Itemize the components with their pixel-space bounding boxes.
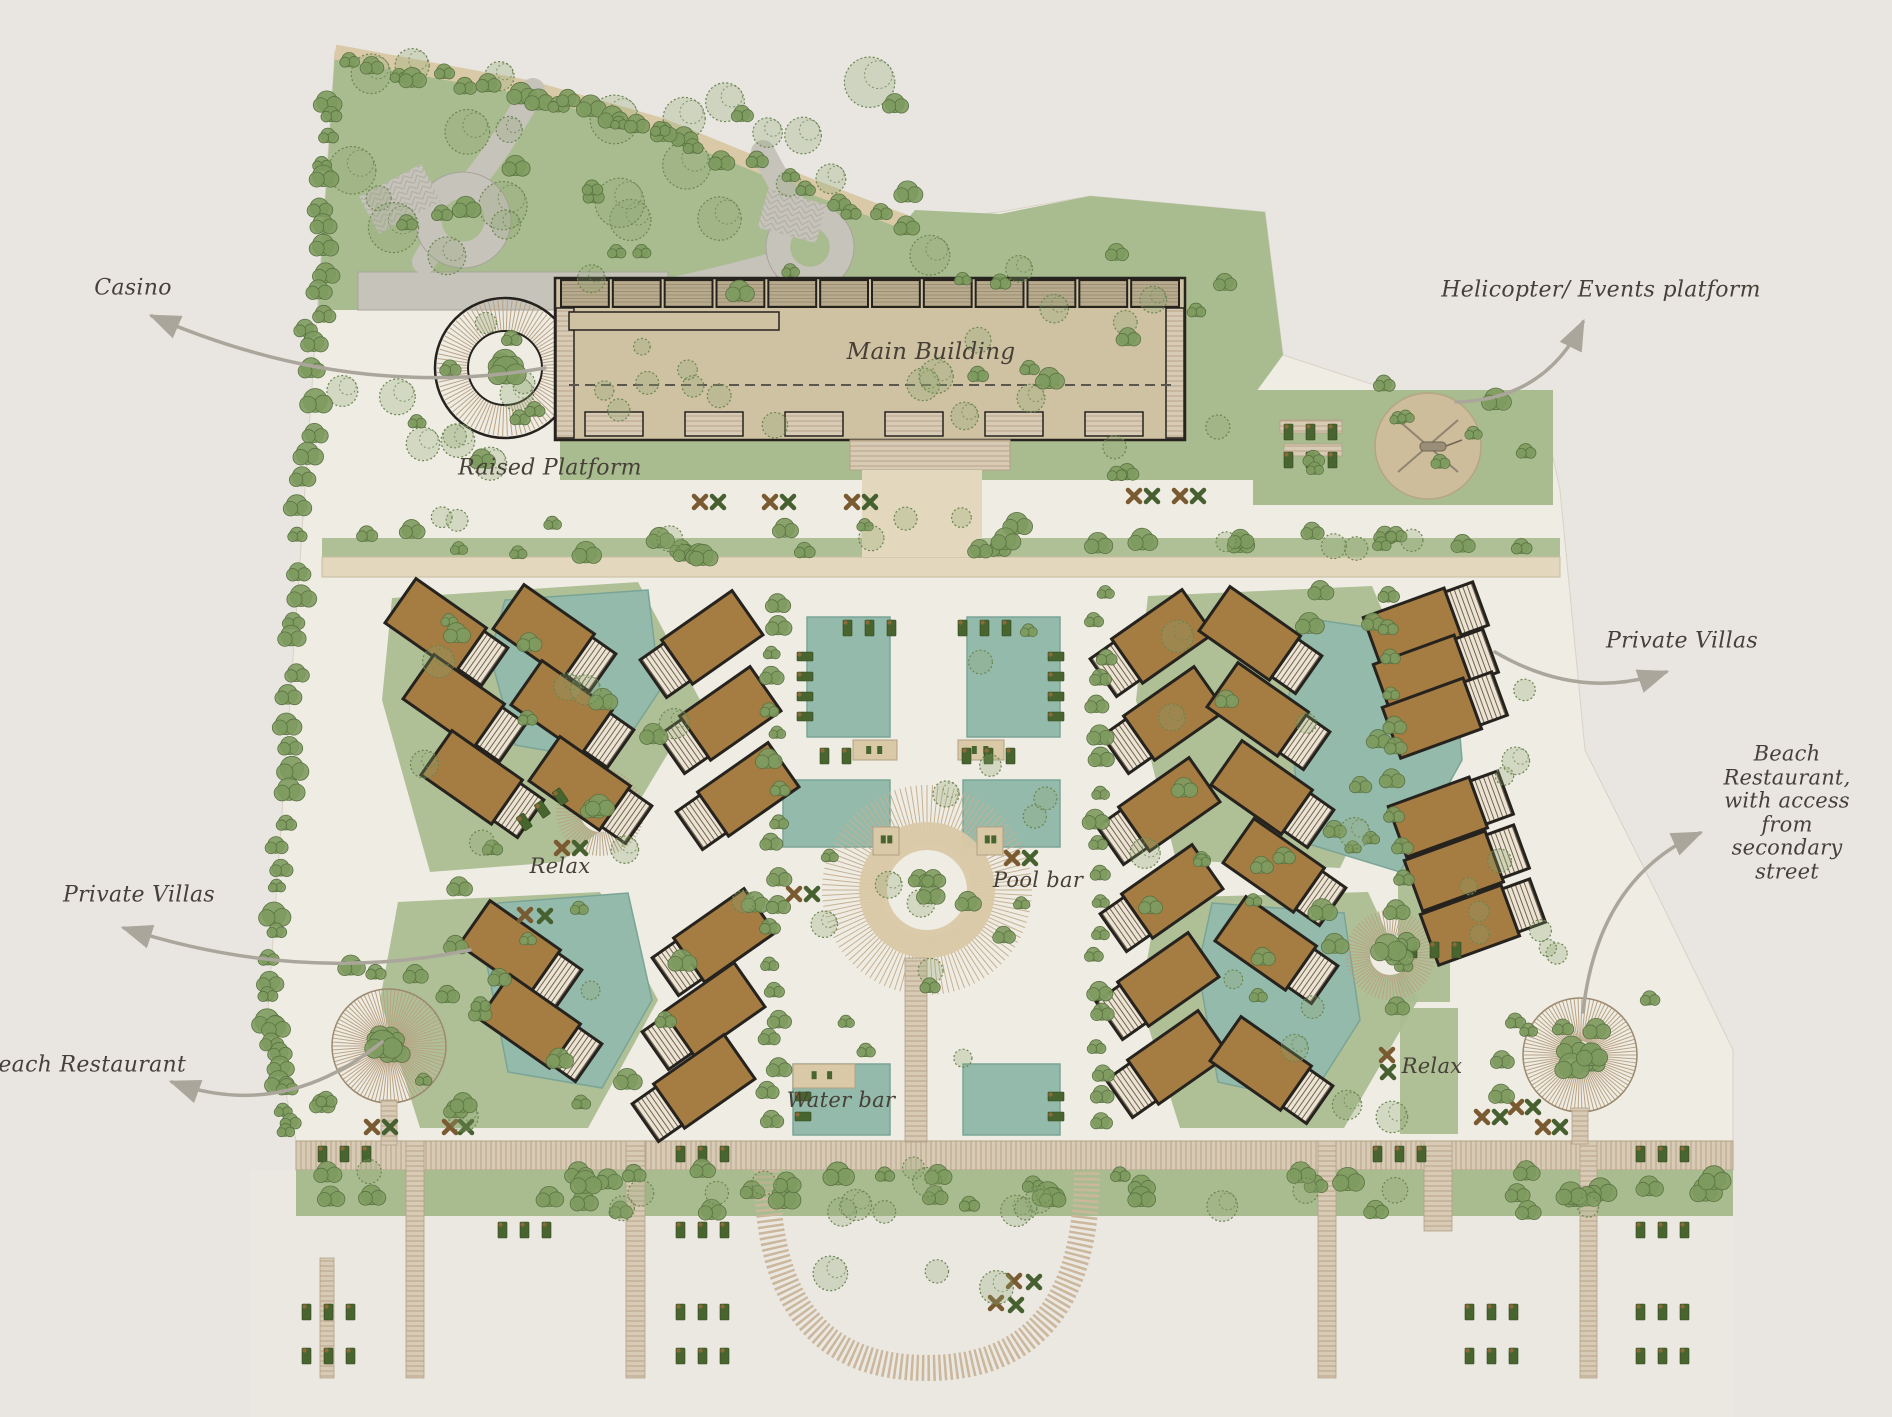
path-band (322, 557, 1560, 577)
label-raised-platform: Raised Platform (458, 456, 642, 481)
label-helicopter-events-platform: Helicopter/ Events platform (1441, 278, 1760, 303)
label-relax-right: Relax (1402, 1054, 1463, 1078)
label-private-villas-left: Private Villas (63, 883, 215, 908)
label-water-bar: Water bar (787, 1088, 896, 1112)
label-main-building: Main Building (847, 339, 1016, 365)
label-line: Beach Restaurant, (1724, 742, 1851, 789)
label-line: secondary street (1724, 837, 1851, 884)
label-pool-bar: Pool bar (993, 868, 1083, 892)
label-relax-left: Relax (530, 854, 591, 878)
label-beach-restaurant-left: Beach Restaurant (0, 1053, 186, 1078)
resort-master-plan: Casino Main Building Helicopter/ Events … (0, 0, 1892, 1417)
label-line: with access from (1724, 789, 1851, 836)
site-plan-drawing (0, 0, 1892, 1417)
label-beach-restaurant-right: Beach Restaurant, with access from secon… (1724, 742, 1851, 883)
label-casino: Casino (94, 276, 172, 301)
label-private-villas-right: Private Villas (1606, 629, 1758, 654)
